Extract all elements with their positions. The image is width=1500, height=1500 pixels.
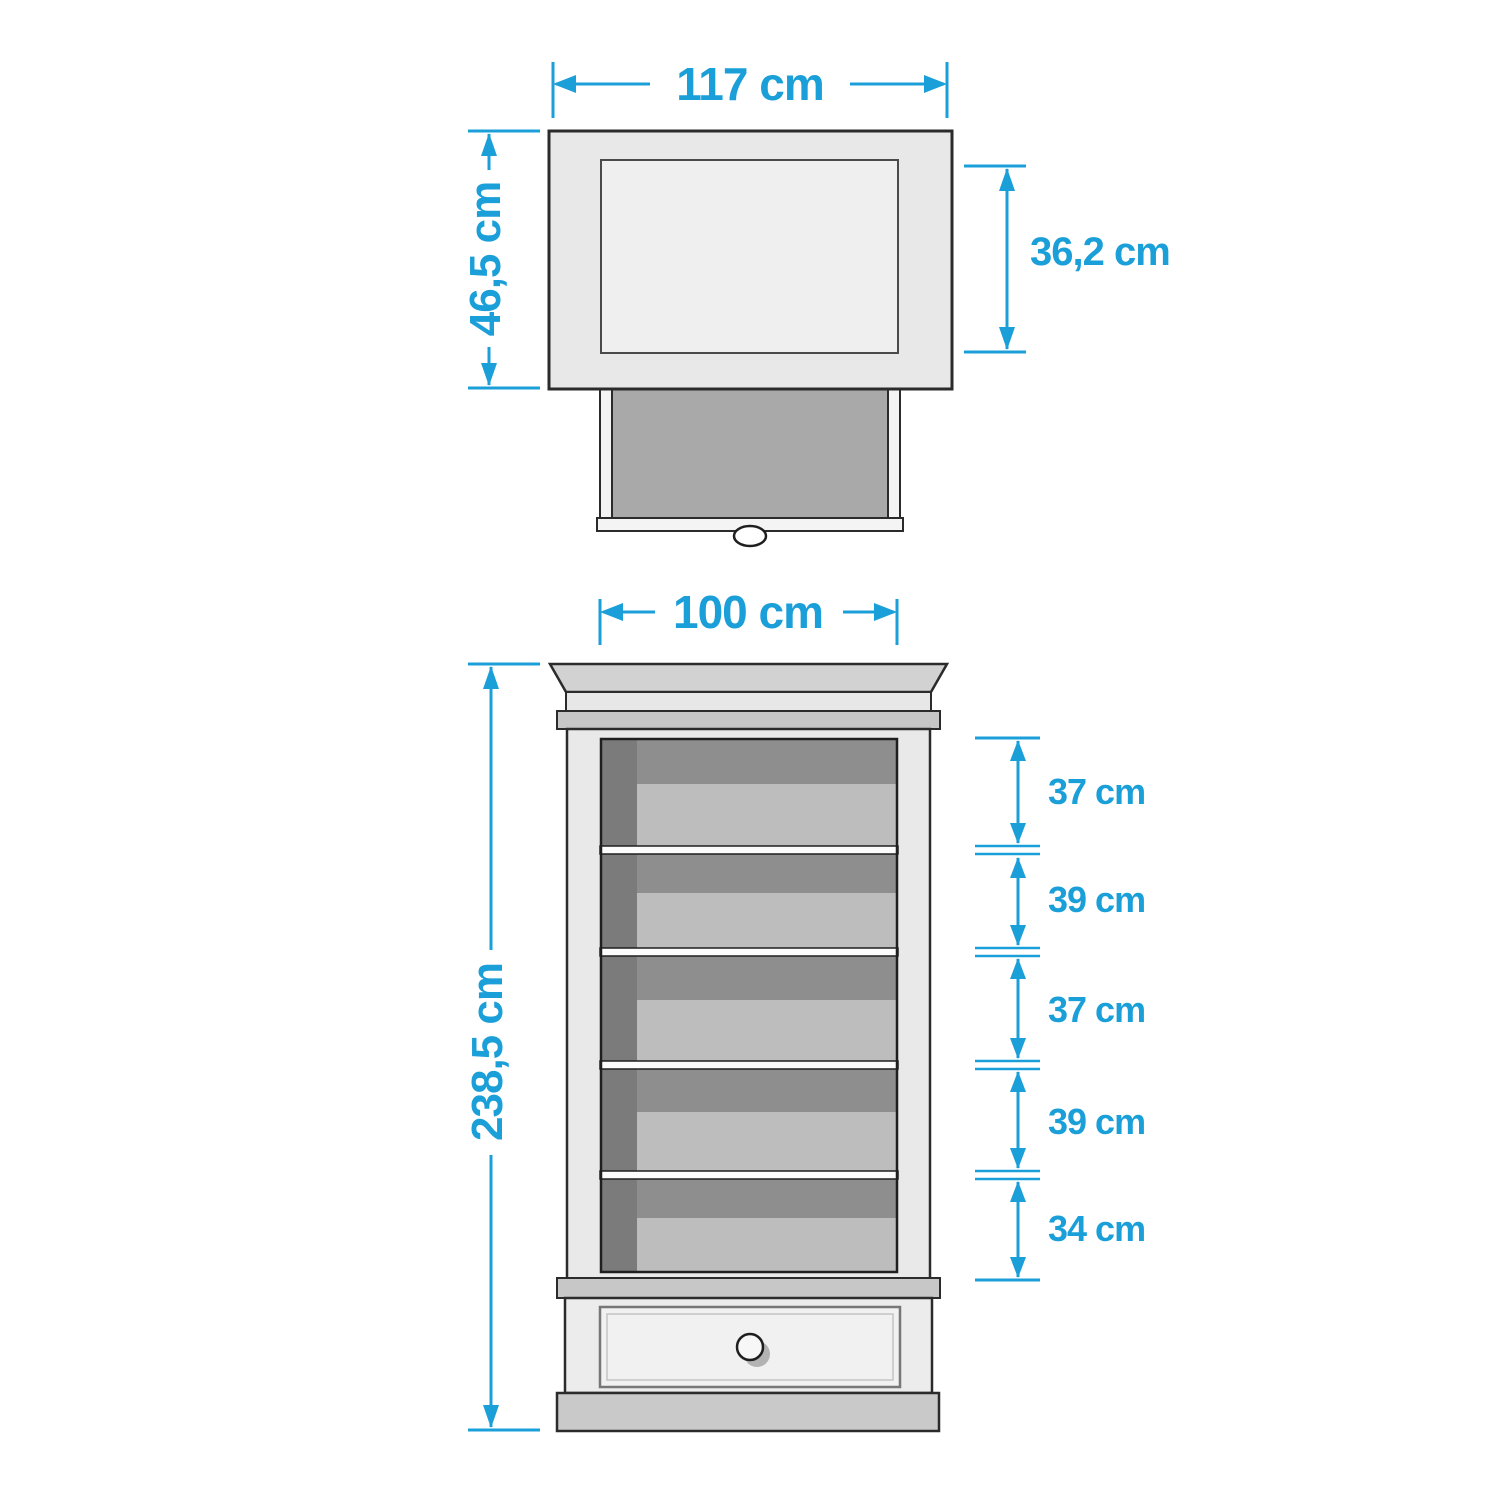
arrow-117-left [553,75,576,93]
drawer-knob-top-view [734,526,766,546]
arrow-465-down [481,363,497,386]
plinth-base [557,1393,939,1431]
arrow-shelf3-up [1010,958,1026,979]
dim-label-top-width: 117 cm [676,61,823,107]
diagram-graphics [0,0,1500,1500]
dim-label-shelf-3: 37 cm [1048,992,1145,1028]
shelf-divider-2 [600,948,898,956]
arrow-100-right [874,603,897,621]
arrow-2385-down [483,1405,499,1428]
arrow-465-up [481,133,497,156]
dim-label-front-height: 238,5 cm [466,963,510,1141]
top-band [557,711,940,729]
dim-label-shelf-2: 39 cm [1048,882,1145,918]
arrow-shelf2-down [1010,925,1026,946]
shelf-divider-1 [600,846,898,854]
drawer-interior [612,389,888,518]
top-view [549,131,952,546]
middle-band [557,1278,940,1298]
cabinet-interior [600,739,898,1272]
arrow-117-right [924,75,947,93]
arrow-shelf2-up [1010,857,1026,878]
arrow-362-down [999,327,1015,350]
dim-label-shelf-4: 39 cm [1048,1104,1145,1140]
compartment-3-side-shadow [601,956,637,1061]
dimension-diagram: 117 cm 46,5 cm 36,2 cm 100 cm 238,5 cm 3… [0,0,1500,1500]
cabinet-top-inner-panel [601,160,898,353]
arrow-100-left [600,603,623,621]
dim-shelf-double-ticks [975,846,1040,1179]
compartment-5-side-shadow [601,1179,637,1272]
shelf-divider-4 [600,1171,898,1179]
compartment-1-shelf-floor [637,784,897,846]
compartment-3-shelf-floor [637,1000,897,1061]
arrow-shelf5-down [1010,1257,1026,1278]
compartment-4-shelf-floor [637,1112,897,1171]
crown-frieze [566,692,931,711]
compartment-1-side-shadow [601,739,637,846]
drawer-knob [737,1334,763,1360]
compartment-4-side-shadow [601,1069,637,1171]
front-view [550,664,947,1431]
dim-label-drawer-depth: 36,2 cm [1030,232,1170,272]
shelf-divider-3 [600,1061,898,1069]
compartment-2-shelf-floor [637,893,897,948]
arrow-shelf3-down [1010,1038,1026,1059]
compartment-5-shelf-floor [637,1218,897,1272]
top-view-open-drawer [597,389,903,546]
arrow-shelf1-down [1010,823,1026,844]
arrow-362-up [999,168,1015,191]
arrow-shelf4-down [1010,1148,1026,1169]
dim-label-top-depth: 46,5 cm [464,182,508,336]
crown-cornice [550,664,947,692]
arrow-shelf1-up [1010,740,1026,761]
compartment-2-side-shadow [601,854,637,948]
dim-label-shelf-5: 34 cm [1048,1211,1145,1247]
arrow-shelf4-up [1010,1071,1026,1092]
dim-label-shelf-1: 37 cm [1048,774,1145,810]
arrow-shelf5-up [1010,1181,1026,1202]
arrow-2385-up [483,666,499,689]
dim-label-front-width: 100 cm [673,589,823,635]
